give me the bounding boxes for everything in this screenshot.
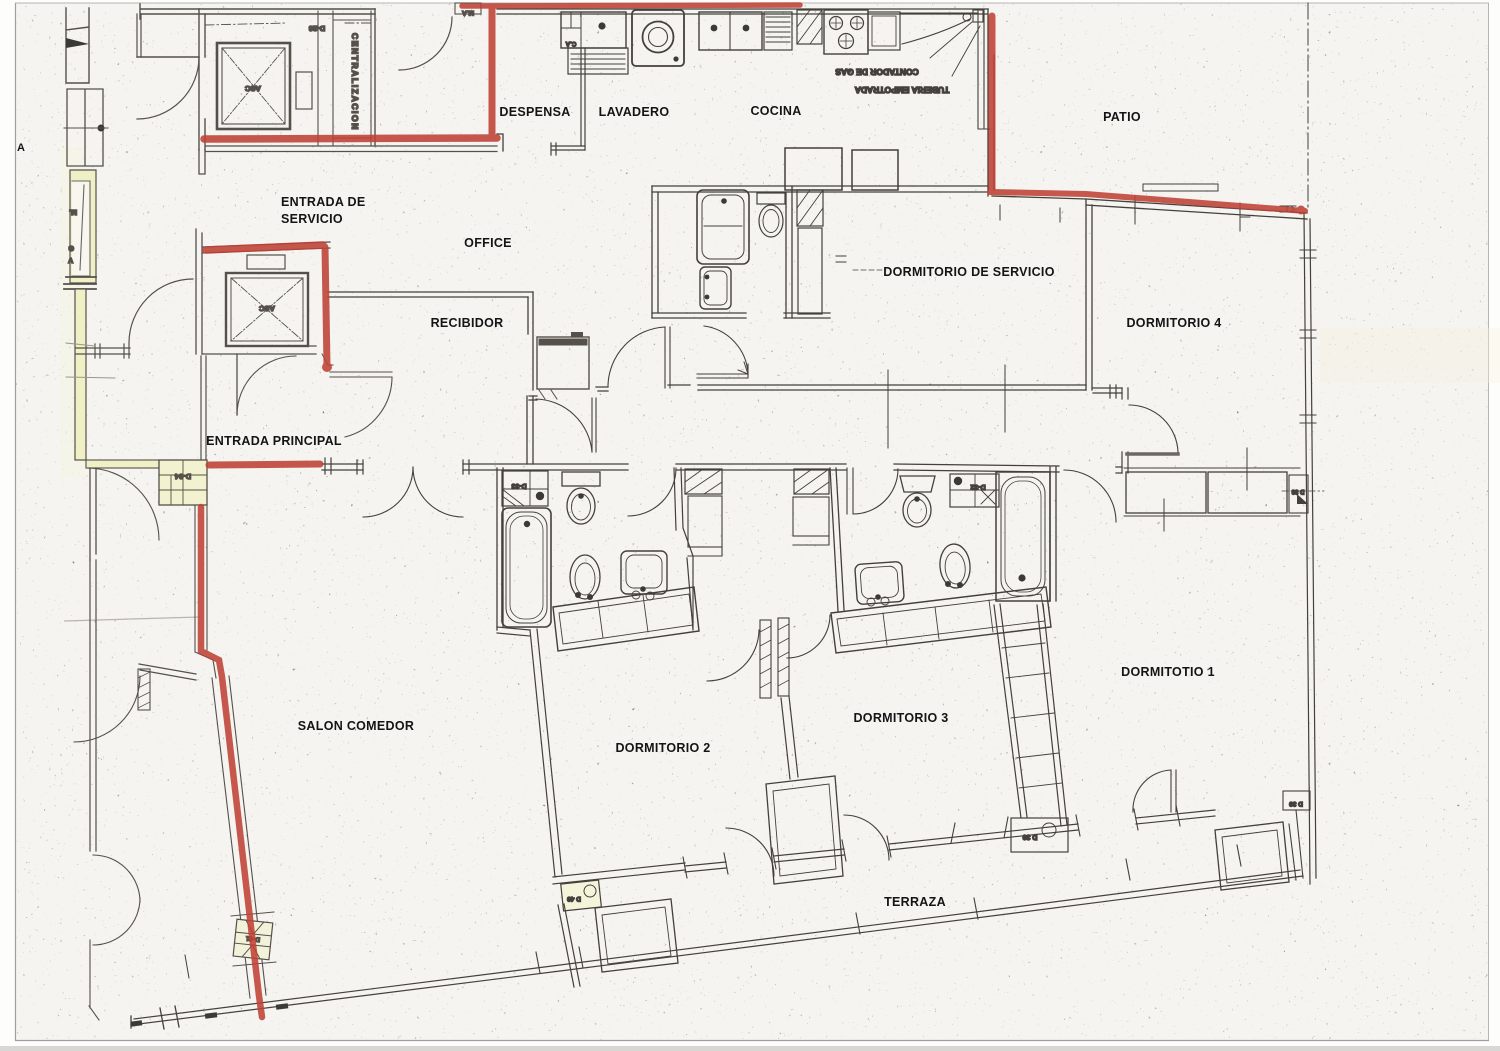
svg-text:D 39: D 39 [1289,800,1303,807]
svg-text:D 40: D 40 [567,895,581,902]
svg-text:ENTRADA DE: ENTRADA DE [281,195,365,209]
svg-text:DORMITOTIO 1: DORMITOTIO 1 [1121,665,1215,679]
svg-text:DORMITORIO 4: DORMITORIO 4 [1126,316,1221,330]
svg-text:COCINA: COCINA [750,104,801,118]
svg-text:LAVADERO: LAVADERO [599,105,670,119]
svg-text:D-32: D-32 [970,483,985,490]
svg-text:RECIBIDOR: RECIBIDOR [431,316,504,330]
svg-text:CENTRALIZACION: CENTRALIZACION [350,33,360,131]
svg-text:SERVICIO: SERVICIO [281,212,343,226]
svg-text:DESPENSA: DESPENSA [499,105,570,119]
svg-text:DORMITORIO 2: DORMITORIO 2 [615,741,710,755]
svg-text:D-33: D-33 [511,482,526,489]
svg-text:TUBERIA EMPOTRADA: TUBERIA EMPOTRADA [855,85,950,95]
svg-text:PATIO: PATIO [1103,110,1141,124]
svg-text:G: G [68,244,74,251]
svg-text:OFFICE: OFFICE [464,236,512,250]
svg-text:TERRAZA: TERRAZA [884,895,946,909]
svg-text:D-34: D-34 [174,472,191,481]
svg-text:V: V [68,256,73,263]
svg-text:A: A [17,142,25,154]
svg-text:ASC: ASC [245,84,261,93]
svg-text:D-26: D-26 [309,24,325,33]
svg-text:CONTADOR DE GAS: CONTADOR DE GAS [835,67,919,77]
svg-text:D 38: D 38 [1291,488,1304,494]
svg-text:DORMITORIO 3: DORMITORIO 3 [853,711,948,725]
svg-text:ASC: ASC [259,304,275,313]
svg-text:M.: M. [69,208,77,215]
svg-text:M.A: M.A [462,9,474,16]
svg-text:C.A: C.A [565,40,576,47]
svg-text:DORMITORIO DE SERVICIO: DORMITORIO DE SERVICIO [883,265,1054,279]
svg-text:ENTRADA PRINCIPAL: ENTRADA PRINCIPAL [206,434,342,448]
svg-text:SALON COMEDOR: SALON COMEDOR [298,719,414,733]
